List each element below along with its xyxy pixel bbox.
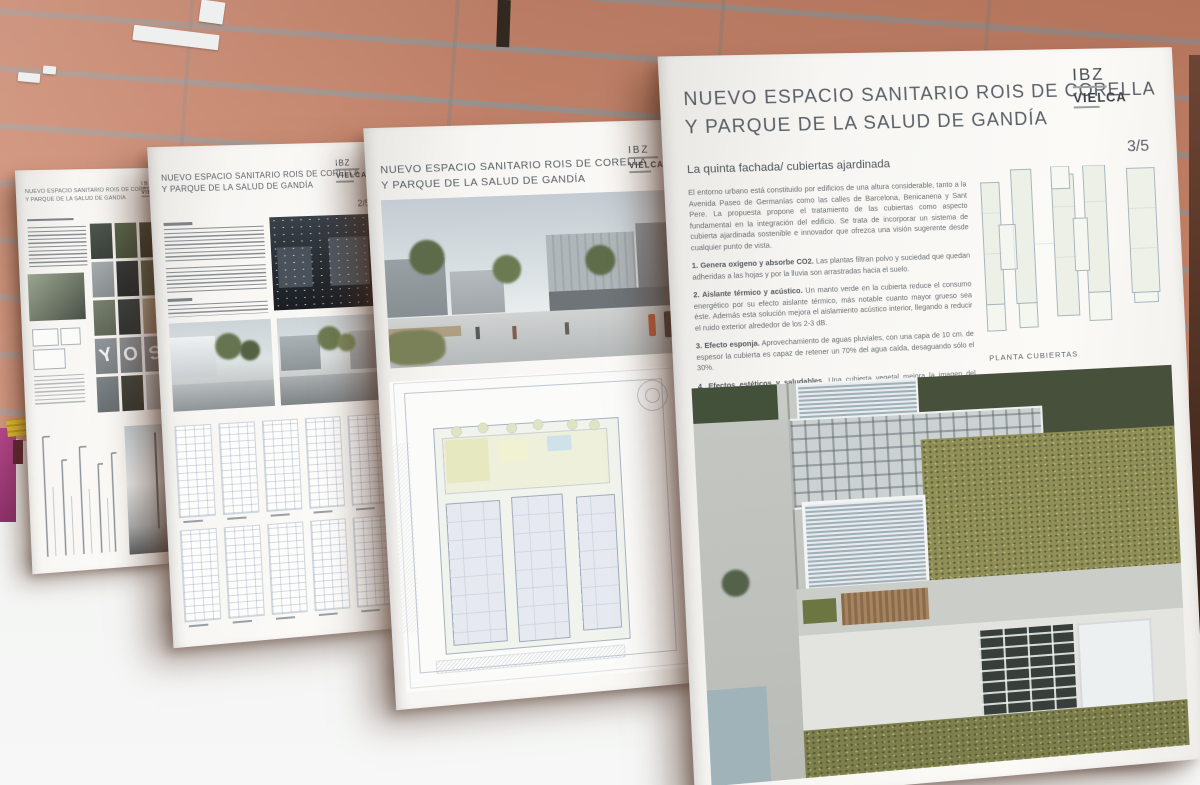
yellow-object: [6, 418, 27, 437]
floor-plan-thumb: [262, 419, 303, 512]
render-tree: [492, 254, 522, 284]
aerial-planter: [802, 598, 837, 624]
board2-paragraph-text: [166, 264, 267, 293]
photo-tile: [90, 223, 113, 259]
floor-plan-thumb: [224, 525, 265, 619]
photo-tile-letter-o: O: [119, 337, 142, 373]
vielca-logo: VIELCA: [1073, 89, 1147, 106]
logo-subtext-bar: [336, 168, 360, 171]
board2-street-render-2: [277, 314, 382, 406]
benefit-item-3: 3. Efecto esponja. Aprovechamiento de ag…: [696, 330, 975, 375]
render-building: [170, 336, 217, 379]
benefit-item-2: 2. Aislante térmico y acústico. Un manto…: [693, 280, 973, 335]
floor-plan-thumb: [267, 521, 308, 615]
render-ground: [172, 380, 275, 412]
render-figure: [512, 326, 517, 339]
board1-section-heading-bar: [27, 218, 73, 221]
board4-page-number: 3/5: [1127, 138, 1150, 157]
aerial-pool: [707, 686, 772, 785]
floor-plan-thumb: [305, 416, 345, 509]
board1-small-plan: [32, 328, 59, 346]
wall-joint-shadow: [496, 0, 511, 47]
aerial-wood-deck: [841, 588, 930, 625]
render-tree: [215, 332, 243, 360]
photo-tile: [96, 376, 119, 412]
roof-plan-caption: PLANTA CUBIERTAS: [989, 349, 1078, 362]
aerial-green-roof-field: [921, 426, 1181, 580]
photo-tile: [116, 261, 139, 297]
floor-plan-thumb: [218, 421, 259, 515]
lamppost-in-photo: [154, 432, 160, 528]
board1-small-plan: [60, 327, 81, 345]
render-tree: [239, 340, 260, 361]
photo-tile: [118, 299, 141, 335]
board3-site-plan: [389, 365, 705, 693]
asphalt-letter: Y: [97, 343, 115, 368]
tape-strip: [18, 72, 41, 83]
maroon-object: [13, 440, 23, 464]
board4-subtitle: La quinta fachada/ cubiertas ajardinada: [687, 158, 891, 176]
logo-subtext-bar: [1073, 86, 1107, 89]
tape-strip: [43, 65, 57, 74]
board1-paragraph-text: [28, 226, 88, 268]
render-ground: [280, 372, 382, 406]
board2-night-render: [269, 214, 377, 311]
presentation-board-3: NUEVO ESPACIO SANITARIO ROIS DE CORELLA …: [363, 119, 716, 710]
photo-tile: [121, 375, 144, 411]
ibz-logo: IBZ: [335, 158, 369, 168]
logo-subtext-bar: [336, 180, 354, 183]
presentation-board-4: NUEVO ESPACIO SANITARIO ROIS DE CORELLA …: [658, 47, 1200, 785]
board3-title: NUEVO ESPACIO SANITARIO ROIS DE CORELLA …: [380, 155, 648, 194]
board2-paragraph-text: [164, 226, 266, 264]
render-figure: [565, 322, 570, 334]
photo-tile: [115, 223, 138, 259]
floor-plan-thumb: [180, 528, 222, 623]
aerial-hedge-dark: [692, 384, 778, 424]
board2-title: NUEVO ESPACIO SANITARIO ROIS DE CORELLA …: [161, 167, 360, 195]
lit-windows: [269, 214, 377, 311]
roof-plan-drawings: [978, 163, 1166, 349]
photo-of-presentation-boards: NUEVO ESPACIO SANITARIO ROIS DE CORELLA …: [0, 0, 1200, 785]
board2-heading-bar: [164, 222, 193, 226]
photo-tile-letter-y: Y: [95, 338, 118, 374]
ibz-logo: IBZ: [1072, 64, 1146, 86]
board1-caption-text: [34, 374, 86, 407]
tape-strip: [199, 0, 226, 25]
lamppost-elevation-drawings: [34, 422, 126, 561]
render-building: [279, 335, 321, 371]
floor-plan-thumb: [174, 424, 216, 518]
intro-paragraph: El entorno urbano está constituido por e…: [688, 180, 969, 254]
board1-photo-wide: [28, 273, 86, 322]
benefit-item-1: 1. Genera oxígeno y absorbe CO2. Las pla…: [692, 252, 971, 284]
photo-tile: [93, 300, 116, 336]
board2-paragraph-text: [168, 301, 268, 318]
logo-subtext-bar: [629, 156, 659, 159]
render-figure: [475, 327, 480, 339]
board1-small-plan: [33, 348, 66, 370]
board2-heading-bar: [168, 298, 193, 302]
logo-subtext-bar: [1074, 106, 1100, 109]
floor-plan-thumb: [310, 518, 350, 611]
vielca-logo: VIELCA: [336, 172, 370, 180]
photo-tile: [91, 261, 114, 297]
board2-street-render-1: [169, 319, 275, 412]
render-figure-orange: [648, 314, 656, 336]
board2-floor-plan-grid: [174, 414, 392, 623]
presentation-board-2: NUEVO ESPACIO SANITARIO ROIS DE CORELLA …: [147, 142, 405, 649]
asphalt-letter: O: [121, 342, 141, 367]
board4-aerial-roof-render: [692, 365, 1190, 785]
board4-logos: IBZ VIELCA: [1072, 64, 1148, 111]
logo-subtext-bar: [629, 170, 651, 173]
board3-plaza-render: [381, 190, 686, 369]
